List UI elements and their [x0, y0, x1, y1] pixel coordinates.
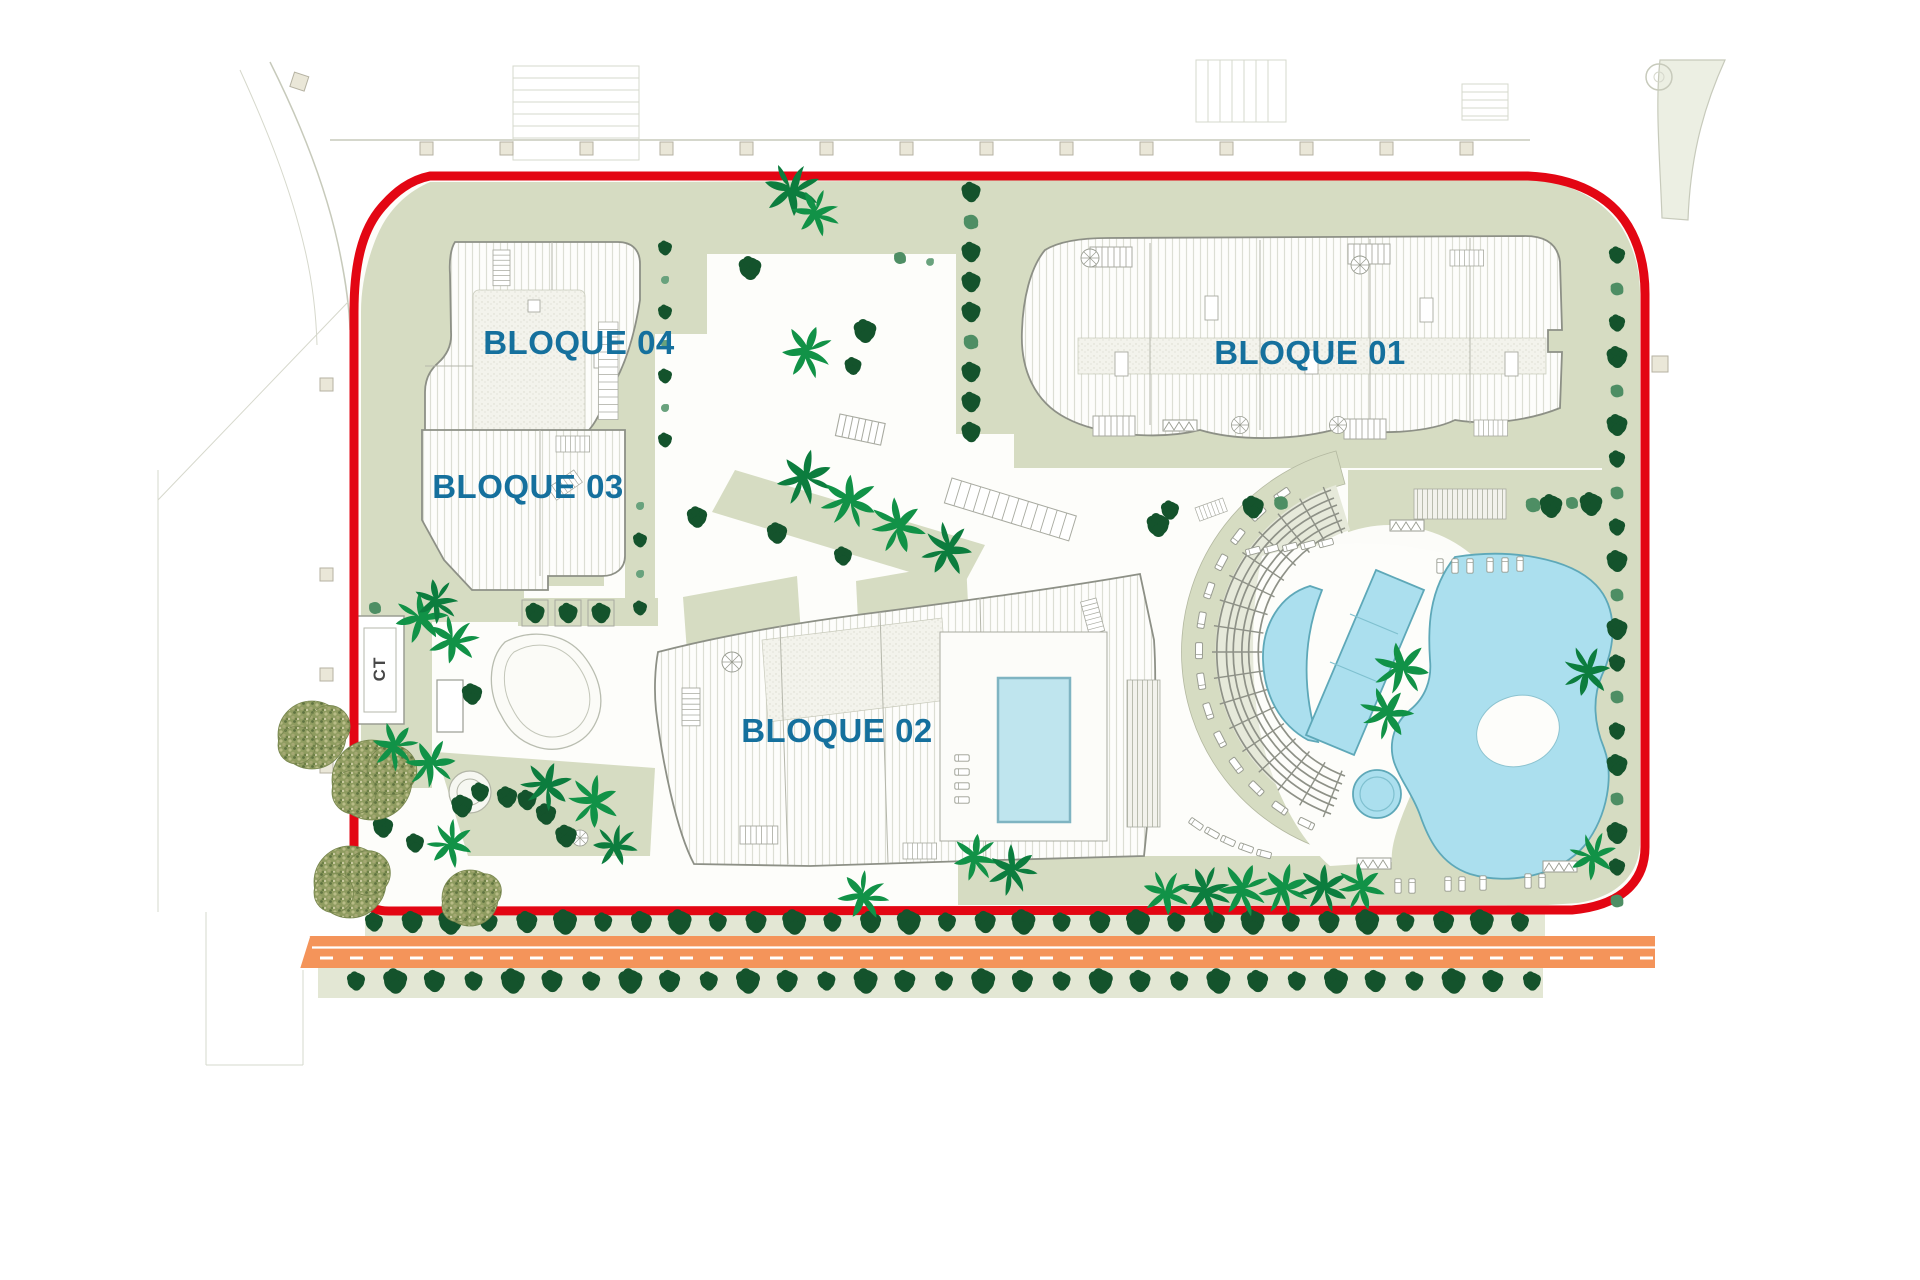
label-bloque-02: BLOQUE 02	[741, 712, 933, 750]
site-plan: BLOQUE 04 BLOQUE 03 BLOQUE 01 BLOQUE 02 …	[0, 0, 1920, 1280]
building-bloque-03	[422, 430, 625, 590]
label-bloque-03: BLOQUE 03	[432, 468, 624, 506]
label-ct: CT	[370, 657, 390, 682]
road-surface	[299, 936, 1655, 968]
site-plan-drawing	[0, 0, 1920, 1280]
bloque01-tree-row	[961, 182, 980, 442]
label-bloque-01: BLOQUE 01	[1214, 334, 1406, 372]
label-bloque-04: BLOQUE 04	[483, 324, 675, 362]
wood-deck	[1414, 489, 1506, 519]
